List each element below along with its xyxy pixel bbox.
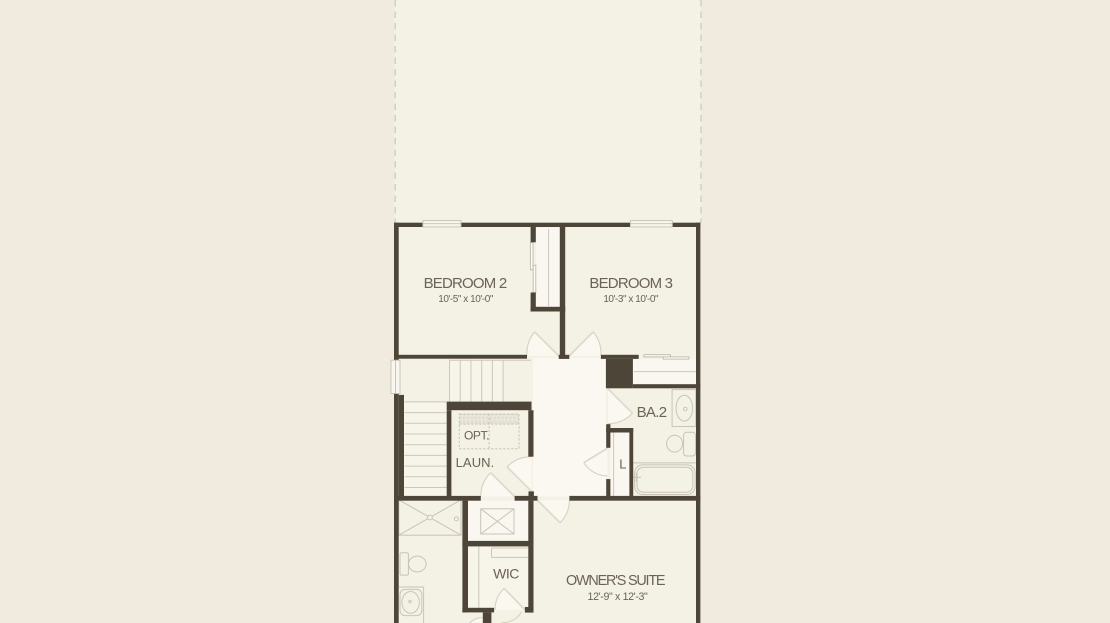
svg-text:12'-9" x 12'-3": 12'-9" x 12'-3" — [588, 591, 648, 603]
svg-text:BEDROOM 3: BEDROOM 3 — [589, 275, 672, 292]
svg-text:BEDROOM 2: BEDROOM 2 — [424, 275, 507, 292]
svg-text:10'-5" x 10'-0": 10'-5" x 10'-0" — [438, 294, 494, 305]
svg-text:OWNER'S SUITE: OWNER'S SUITE — [566, 573, 665, 589]
svg-text:BA.2: BA.2 — [637, 404, 667, 421]
svg-text:10'-3" x 10'-0": 10'-3" x 10'-0" — [603, 294, 659, 305]
svg-text:L: L — [619, 456, 626, 471]
svg-text:WIC: WIC — [493, 566, 519, 582]
svg-text:LAUN.: LAUN. — [456, 455, 495, 470]
svg-text:OPT.: OPT. — [464, 428, 489, 442]
